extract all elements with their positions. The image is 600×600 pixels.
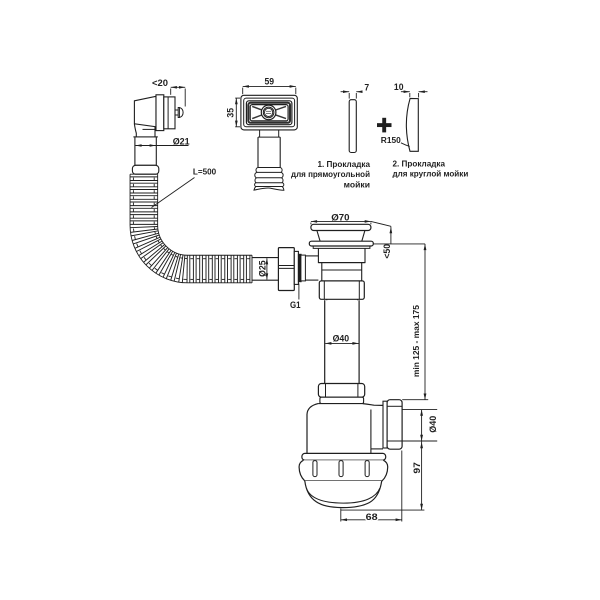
svg-text:min 125 - max 175: min 125 - max 175 [411, 305, 421, 377]
svg-text:для круглой мойки: для круглой мойки [393, 170, 469, 179]
svg-text:1. Прокладка: 1. Прокладка [318, 160, 371, 169]
svg-text:59: 59 [265, 77, 275, 87]
svg-text:Ø40: Ø40 [333, 333, 350, 343]
svg-text:R150: R150 [381, 135, 401, 145]
svg-text:7: 7 [364, 83, 369, 93]
svg-text:<50: <50 [382, 244, 392, 259]
svg-text:97: 97 [412, 462, 422, 474]
svg-text:Ø21: Ø21 [173, 136, 190, 146]
svg-text:G1: G1 [290, 300, 301, 310]
svg-text:2. Прокладка: 2. Прокладка [393, 160, 446, 169]
svg-text:L=500: L=500 [193, 166, 217, 176]
svg-text:<20: <20 [152, 78, 168, 88]
svg-text:Ø40: Ø40 [428, 416, 438, 433]
svg-text:68: 68 [366, 512, 378, 522]
svg-text:35: 35 [226, 108, 236, 118]
svg-text:мойки: мойки [344, 180, 370, 189]
svg-text:10: 10 [394, 82, 404, 92]
svg-text:для прямоугольной: для прямоугольной [291, 170, 370, 179]
